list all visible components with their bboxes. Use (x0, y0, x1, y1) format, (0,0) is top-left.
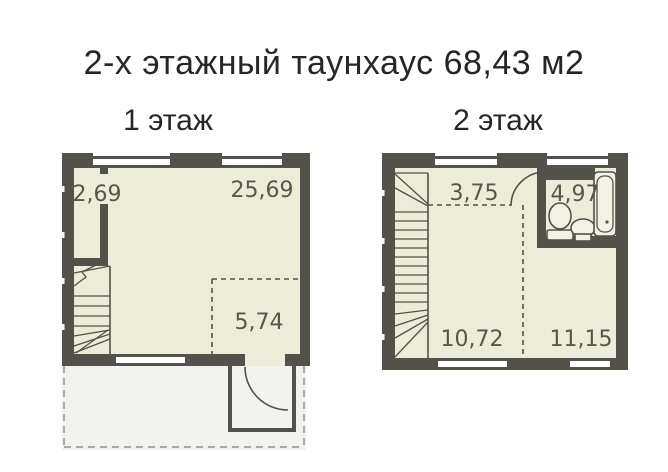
toilet-tank (547, 230, 573, 240)
floor2-room-right-area: 11,15 (550, 327, 613, 352)
floorplan-page: 2-х этажный таунхаус 68,43 м2 1 этаж 2 э… (0, 0, 668, 472)
floor1-plan: 2,69 25,69 5,74 (50, 146, 316, 466)
floor1-hall-area: 2,69 (73, 182, 122, 207)
floor2-plan: 3,75 4,97 10,72 11,15 (370, 146, 636, 386)
floor1-label: 1 этаж (38, 104, 298, 138)
entrance-door-opening (245, 354, 285, 366)
terrace-outline (62, 366, 306, 450)
window (116, 357, 185, 363)
window (570, 361, 610, 367)
floor1-living-area: 25,69 (231, 178, 294, 203)
window (435, 159, 497, 165)
window (547, 159, 608, 165)
bathtub-drain (605, 220, 608, 223)
page-title: 2-х этажный таунхаус 68,43 м2 (0, 44, 668, 83)
floor2-hall-area: 3,75 (450, 181, 499, 206)
sink-pedestal (575, 234, 591, 241)
floor1-kitchen-area: 5,74 (235, 310, 284, 335)
window (438, 361, 507, 367)
window (222, 159, 282, 165)
floor2-bathroom-area: 4,97 (551, 182, 600, 207)
window (93, 159, 170, 165)
floor2-room-left-area: 10,72 (441, 327, 504, 352)
floor2-label: 2 этаж (368, 104, 628, 138)
